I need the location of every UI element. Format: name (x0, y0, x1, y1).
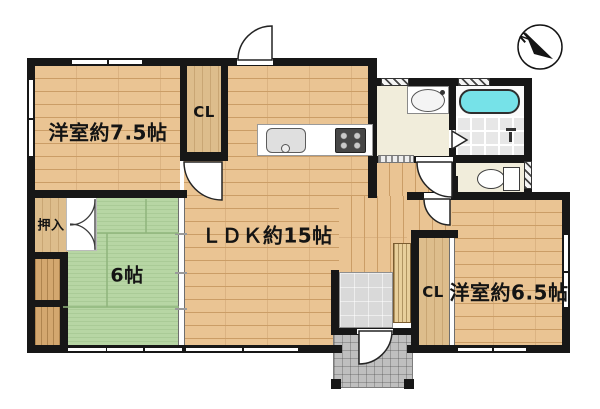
room-65-door-opening (424, 193, 451, 199)
room-western-6-5-label: 洋室約6.5帖 (450, 277, 569, 306)
back-door-swing (238, 26, 272, 60)
wall (180, 62, 187, 160)
entrance-door-opening (357, 329, 393, 334)
closet-right-label: CL (422, 283, 444, 301)
compass-icon: N (517, 25, 562, 69)
wall (60, 252, 68, 353)
wall (449, 86, 456, 130)
vent-window (458, 78, 490, 86)
toilet-bowl (477, 169, 505, 189)
room-western-7-5-label: 洋室約7.5帖 (49, 117, 168, 146)
wall (331, 270, 339, 335)
storage-strip-lower (35, 307, 60, 345)
porch-post-right (404, 379, 414, 389)
entrance-porch (333, 333, 413, 388)
toilet-door-opening (416, 157, 453, 162)
window (68, 346, 182, 353)
floor-plan: N 洋室約7.5帖 CL ＬＤＫ約15帖 押入 6帖 CL 洋室約6.5帖 (0, 0, 600, 409)
room-western-6-5-floor (452, 200, 562, 345)
bath-faucet (509, 132, 512, 142)
bathroom-floor (455, 116, 524, 156)
bathtub (459, 89, 520, 114)
oshiire-label: 押入 (37, 215, 64, 234)
basin-faucet (440, 90, 445, 95)
vent-window (524, 161, 532, 189)
genkan-tile (339, 272, 393, 328)
porch-post-left (331, 379, 341, 389)
window (72, 58, 142, 66)
wall (411, 230, 458, 238)
gas-stove (335, 128, 366, 153)
ldk-label: ＬＤＫ約15帖 (201, 220, 332, 249)
washroom-sliding-door (378, 155, 414, 163)
window (27, 80, 35, 156)
closet-top-label: CL (193, 103, 215, 121)
compass-north-label: N (517, 30, 533, 46)
storage-strip-upper (35, 259, 60, 300)
sink-drain (281, 144, 290, 153)
wall (449, 155, 532, 163)
bath-faucet (506, 128, 516, 131)
toilet-tank (503, 167, 520, 191)
shoe-cabinet (393, 243, 411, 323)
wall (27, 190, 187, 198)
window (458, 346, 526, 353)
wall (180, 152, 228, 161)
window (186, 346, 298, 353)
vent-window (381, 78, 409, 86)
tatami-room-label: 6帖 (110, 261, 143, 288)
wall (450, 176, 458, 194)
wall (221, 62, 228, 160)
back-door-opening (237, 59, 273, 65)
oshiire-doors (66, 197, 97, 251)
